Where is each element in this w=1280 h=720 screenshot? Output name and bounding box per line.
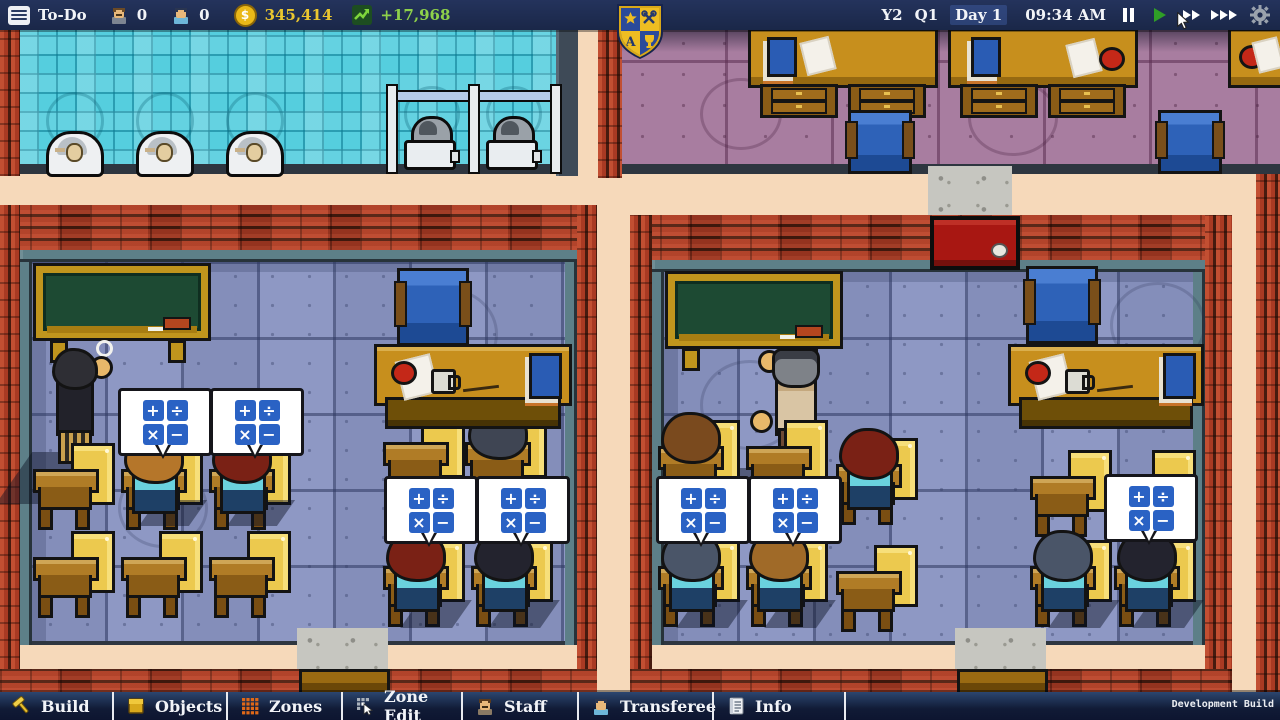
thought-bubble-math: +÷×− xyxy=(210,388,304,456)
math-symbol-tile: × xyxy=(501,512,522,533)
thought-bubble-math: +÷×− xyxy=(118,388,212,456)
math-symbol-tile: × xyxy=(143,424,164,445)
math-symbol-tile: − xyxy=(797,512,818,533)
desk-drawer xyxy=(960,84,1038,118)
thought-bubble-math: +÷×− xyxy=(384,476,478,544)
money-delta: +17,968 xyxy=(380,6,450,24)
thought-bubble-math: +÷×− xyxy=(748,476,842,544)
math-symbol-tile: − xyxy=(433,512,454,533)
teacher-hair xyxy=(52,348,98,390)
staff-count[interactable]: 0 xyxy=(137,6,147,24)
apple xyxy=(1099,47,1125,71)
eraser xyxy=(795,325,823,338)
eraser xyxy=(163,317,191,330)
tab-objects[interactable]: Objects xyxy=(114,692,226,720)
thought-bubble-math: +÷×− xyxy=(1104,474,1198,542)
right-classroom-top-wall xyxy=(630,215,1205,260)
students-count-icon xyxy=(171,5,191,25)
stall-toilet[interactable] xyxy=(486,116,538,170)
school-crest-logo: A xyxy=(609,0,671,62)
thought-bubble-math: +÷×− xyxy=(476,476,570,544)
pencil xyxy=(1097,385,1133,392)
blue-chair[interactable] xyxy=(848,110,912,174)
chalk xyxy=(148,327,163,331)
left-classroom-left-wall xyxy=(0,205,20,692)
teacher-desk[interactable] xyxy=(748,28,938,88)
math-symbol-tile: − xyxy=(167,424,188,445)
right-classroom-left-wall xyxy=(630,215,652,692)
pencil xyxy=(463,385,499,392)
toilet[interactable] xyxy=(46,131,104,177)
transferee-person-icon xyxy=(591,696,611,716)
math-symbol-tile: − xyxy=(1153,510,1174,531)
math-symbol-tile: + xyxy=(681,488,702,509)
stall-glass xyxy=(478,90,552,102)
profit-graph-icon xyxy=(352,5,372,25)
math-symbol-tile: + xyxy=(1129,486,1150,507)
math-symbol-tile: ÷ xyxy=(1153,486,1174,507)
doorway-concrete xyxy=(955,628,1046,669)
clock-time: 09:34 AM xyxy=(1025,6,1106,24)
math-symbol-tile: × xyxy=(409,512,430,533)
math-symbol-tile: × xyxy=(681,512,702,533)
settings-gear-icon[interactable] xyxy=(1250,5,1270,25)
map-edge-wall xyxy=(1256,174,1280,692)
student-desk[interactable] xyxy=(209,531,291,617)
zones-grid-icon xyxy=(240,696,260,716)
student-character[interactable] xyxy=(1033,530,1097,614)
desk-drawer xyxy=(1048,84,1126,118)
stall-toilet[interactable] xyxy=(404,116,456,170)
tab-separator xyxy=(844,692,846,720)
left-classroom-top-wall xyxy=(0,205,597,250)
staff-count-icon xyxy=(109,5,129,25)
teacher-desk[interactable] xyxy=(374,344,572,406)
right-classroom-bottom-wall xyxy=(630,669,1232,692)
blue-chair[interactable] xyxy=(1158,110,1222,174)
stall-glass xyxy=(396,90,470,102)
toilet[interactable] xyxy=(226,131,284,177)
furniture-icon xyxy=(126,696,146,716)
paper xyxy=(1065,38,1102,78)
chalk xyxy=(780,335,795,339)
math-symbol-tile: − xyxy=(259,424,280,445)
apple xyxy=(1025,361,1051,385)
todo-label[interactable]: To-Do xyxy=(38,6,87,24)
mug xyxy=(1065,369,1090,394)
math-symbol-tile: + xyxy=(773,488,794,509)
book xyxy=(1163,353,1196,399)
doorway-concrete xyxy=(297,628,388,669)
math-symbol-tile: ÷ xyxy=(167,400,188,421)
teacher-hair xyxy=(772,348,820,388)
blue-chair[interactable] xyxy=(1026,266,1098,344)
teacher-desk[interactable] xyxy=(948,28,1138,88)
game-screen: +÷×− +÷×− +÷×− +÷×− +÷×− +÷×− +÷×− To-Do… xyxy=(0,0,1280,720)
money-amount: 345,414 xyxy=(265,6,333,24)
todo-list-icon[interactable] xyxy=(8,6,30,25)
tab-build[interactable]: Build xyxy=(0,692,112,720)
tab-zone-edit[interactable]: Zone Edit xyxy=(343,692,461,720)
day-label: Day 1 xyxy=(950,5,1007,25)
math-symbol-tile: + xyxy=(235,400,256,421)
mouse-cursor xyxy=(1176,12,1190,30)
math-symbol-tile: × xyxy=(1129,510,1150,531)
student-desk[interactable] xyxy=(33,443,115,529)
bottom-toolbar: Build Objects Zones Zone Edit Staff Tran… xyxy=(0,692,1280,720)
paper xyxy=(799,36,836,76)
math-symbol-tile: ÷ xyxy=(259,400,280,421)
tab-info[interactable]: Info xyxy=(714,692,844,720)
right-classroom-right-wall xyxy=(1205,215,1232,692)
math-symbol-tile: ÷ xyxy=(525,488,546,509)
tab-zones[interactable]: Zones xyxy=(228,692,341,720)
left-classroom-right-wall xyxy=(577,205,597,692)
red-door[interactable] xyxy=(930,216,1020,270)
toilet-arm xyxy=(55,148,65,152)
wall-trim xyxy=(565,262,577,645)
apple xyxy=(391,361,417,385)
chalkboard-leg xyxy=(682,348,700,371)
play-button[interactable] xyxy=(1150,5,1170,25)
student-desk[interactable] xyxy=(33,531,115,617)
wall-trim xyxy=(652,260,1205,272)
desk-drawer xyxy=(760,84,838,118)
tab-staff[interactable]: Staff xyxy=(463,692,577,720)
tab-transferee[interactable]: Transferee xyxy=(579,692,712,720)
math-symbol-tile: × xyxy=(235,424,256,445)
fastest-forward-button[interactable] xyxy=(1214,5,1234,25)
info-document-icon xyxy=(726,696,746,716)
teacher-desk[interactable] xyxy=(1008,344,1204,406)
quarter-label: Q1 xyxy=(915,6,939,24)
thought-bubble-math: +÷×− xyxy=(656,476,750,544)
wall-trim xyxy=(20,250,577,262)
chalkboard[interactable] xyxy=(36,266,208,338)
toilet[interactable] xyxy=(136,131,194,177)
pause-button[interactable] xyxy=(1118,5,1138,25)
toilet-flush xyxy=(66,143,83,162)
money-coin-icon: $ xyxy=(234,4,257,27)
year-label: Y2 xyxy=(881,6,902,24)
math-symbol-tile: + xyxy=(143,400,164,421)
zone-edit-icon xyxy=(355,696,375,716)
math-symbol-tile: ÷ xyxy=(797,488,818,509)
math-symbol-tile: × xyxy=(773,512,794,533)
book xyxy=(529,353,562,399)
student-desk[interactable] xyxy=(1030,450,1112,536)
student-desk[interactable] xyxy=(121,531,203,617)
hammer-icon xyxy=(12,696,32,716)
doorway-concrete xyxy=(928,166,1012,216)
chalkboard-leg xyxy=(168,340,186,363)
teacher-desk-partial[interactable] xyxy=(1228,28,1280,88)
mug xyxy=(431,369,456,394)
book xyxy=(971,37,1001,77)
chalkboard[interactable] xyxy=(668,274,840,346)
bathroom-left-wall xyxy=(0,28,20,176)
student-character[interactable] xyxy=(839,428,903,512)
math-symbol-tile: − xyxy=(525,512,546,533)
math-symbol-tile: ÷ xyxy=(433,488,454,509)
student-desk[interactable] xyxy=(836,545,918,631)
staff-person-icon xyxy=(475,696,495,716)
math-symbol-tile: + xyxy=(501,488,522,509)
math-symbol-tile: ÷ xyxy=(705,488,726,509)
math-symbol-tile: − xyxy=(705,512,726,533)
students-count[interactable]: 0 xyxy=(199,6,209,24)
book xyxy=(767,37,797,77)
version-label: Development Build xyxy=(1172,699,1274,710)
blue-chair[interactable] xyxy=(397,268,469,346)
math-symbol-tile: + xyxy=(409,488,430,509)
pointer-ring xyxy=(96,340,113,357)
